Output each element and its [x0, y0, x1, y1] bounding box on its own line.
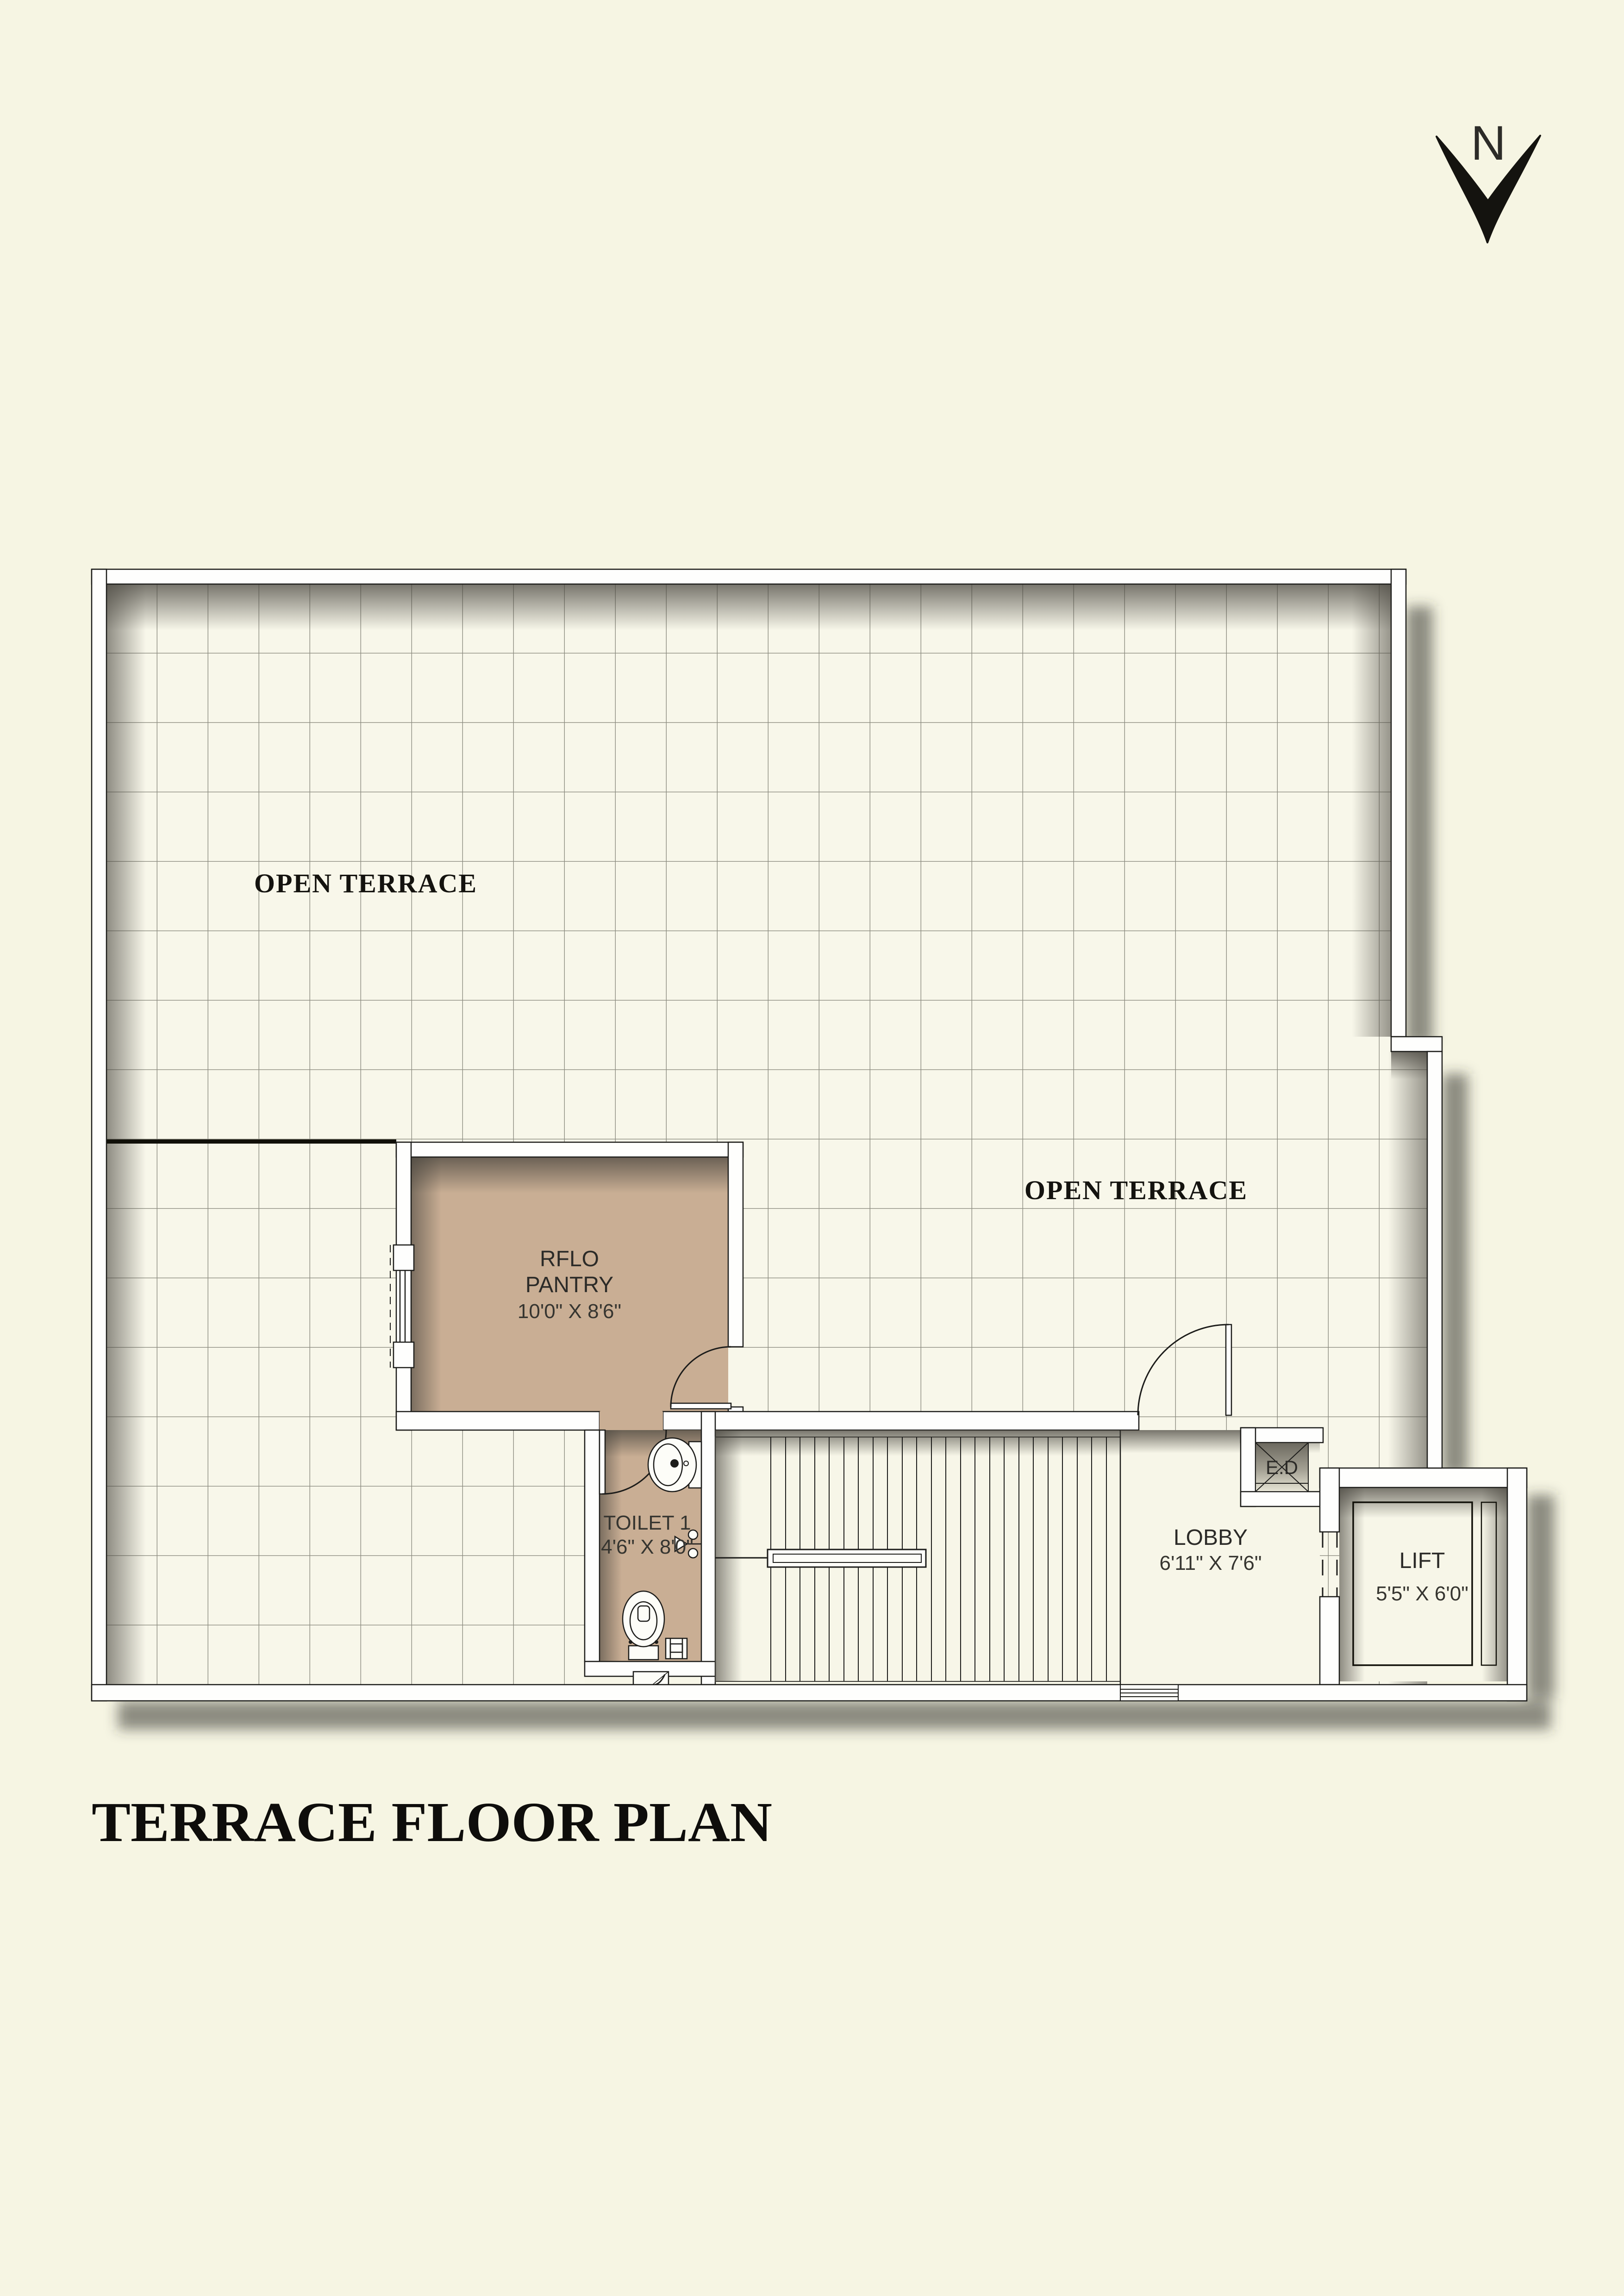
- north-letter: N: [1471, 116, 1506, 170]
- lobby-label: LOBBY: [1174, 1525, 1248, 1550]
- toilet-west-wall: [585, 1430, 600, 1661]
- lift-east-wall: [1507, 1468, 1527, 1701]
- pantry-dimensions: 10'0" X 8'6": [518, 1300, 621, 1323]
- pantry-south-wall: [396, 1412, 600, 1430]
- paper-holder-icon: [666, 1638, 687, 1659]
- pantry-label-line2: PANTRY: [525, 1273, 613, 1297]
- lift-label: LIFT: [1399, 1549, 1445, 1573]
- west-wall: [92, 569, 106, 1701]
- south-wall: [92, 1685, 1527, 1701]
- terrace-level-line: [106, 1139, 396, 1144]
- pantry-north-wall: [396, 1142, 743, 1157]
- east-wall-lower: [1427, 1052, 1442, 1468]
- toilet-wc-icon: [623, 1591, 664, 1660]
- floor-plan-canvas: RFLO PANTRY 10'0" X 8'6": [0, 0, 1624, 2296]
- terrace-floor-plan-page: RFLO PANTRY 10'0" X 8'6": [0, 0, 1624, 2296]
- lift-north-wall: [1320, 1468, 1527, 1487]
- lift-west-wall-upper: [1320, 1468, 1339, 1532]
- south-wall-window: [1120, 1685, 1178, 1701]
- pantry-label-line1: RFLO: [540, 1247, 599, 1271]
- toilet-door-leaf: [600, 1430, 605, 1494]
- lobby-door-leaf: [1226, 1325, 1231, 1415]
- pantry-west-wall: [396, 1142, 411, 1430]
- east-notch-wall: [1391, 1037, 1442, 1052]
- open-terrace-left-label: OPEN TERRACE: [254, 868, 477, 898]
- open-terrace-right-label: OPEN TERRACE: [1024, 1175, 1248, 1205]
- south-band-walls: [396, 1412, 1139, 1430]
- stair-lobby-north-wall: [663, 1412, 1139, 1430]
- stair-handrail: [768, 1549, 926, 1567]
- toilet-room: TOILET 1 4'6" X 8'0": [585, 1412, 715, 1700]
- pantry-east-wall: [728, 1142, 743, 1347]
- washbasin-icon: [648, 1438, 701, 1492]
- north-wall: [92, 569, 1406, 584]
- pantry-room: RFLO PANTRY 10'0" X 8'6": [390, 1142, 743, 1430]
- duct-south-wall: [1241, 1492, 1323, 1506]
- lift-dimensions: 5'5" X 6'0": [1376, 1582, 1468, 1605]
- lobby-dimensions: 6'11" X 7'6": [1160, 1552, 1262, 1574]
- east-wall-upper: [1391, 569, 1406, 1037]
- lift-west-wall-lower: [1320, 1597, 1339, 1685]
- toilet-label: TOILET 1: [603, 1512, 691, 1534]
- page-title: TERRACE FLOOR PLAN: [92, 1791, 772, 1854]
- pantry-door-leaf: [671, 1403, 731, 1409]
- toilet-east-wall: [701, 1412, 715, 1685]
- lift-shaft: LIFT 5'5" X 6'0": [1320, 1468, 1527, 1701]
- toilet-dimensions: 4'6" X 8'0": [601, 1536, 693, 1558]
- duct-label: E.D: [1266, 1456, 1298, 1478]
